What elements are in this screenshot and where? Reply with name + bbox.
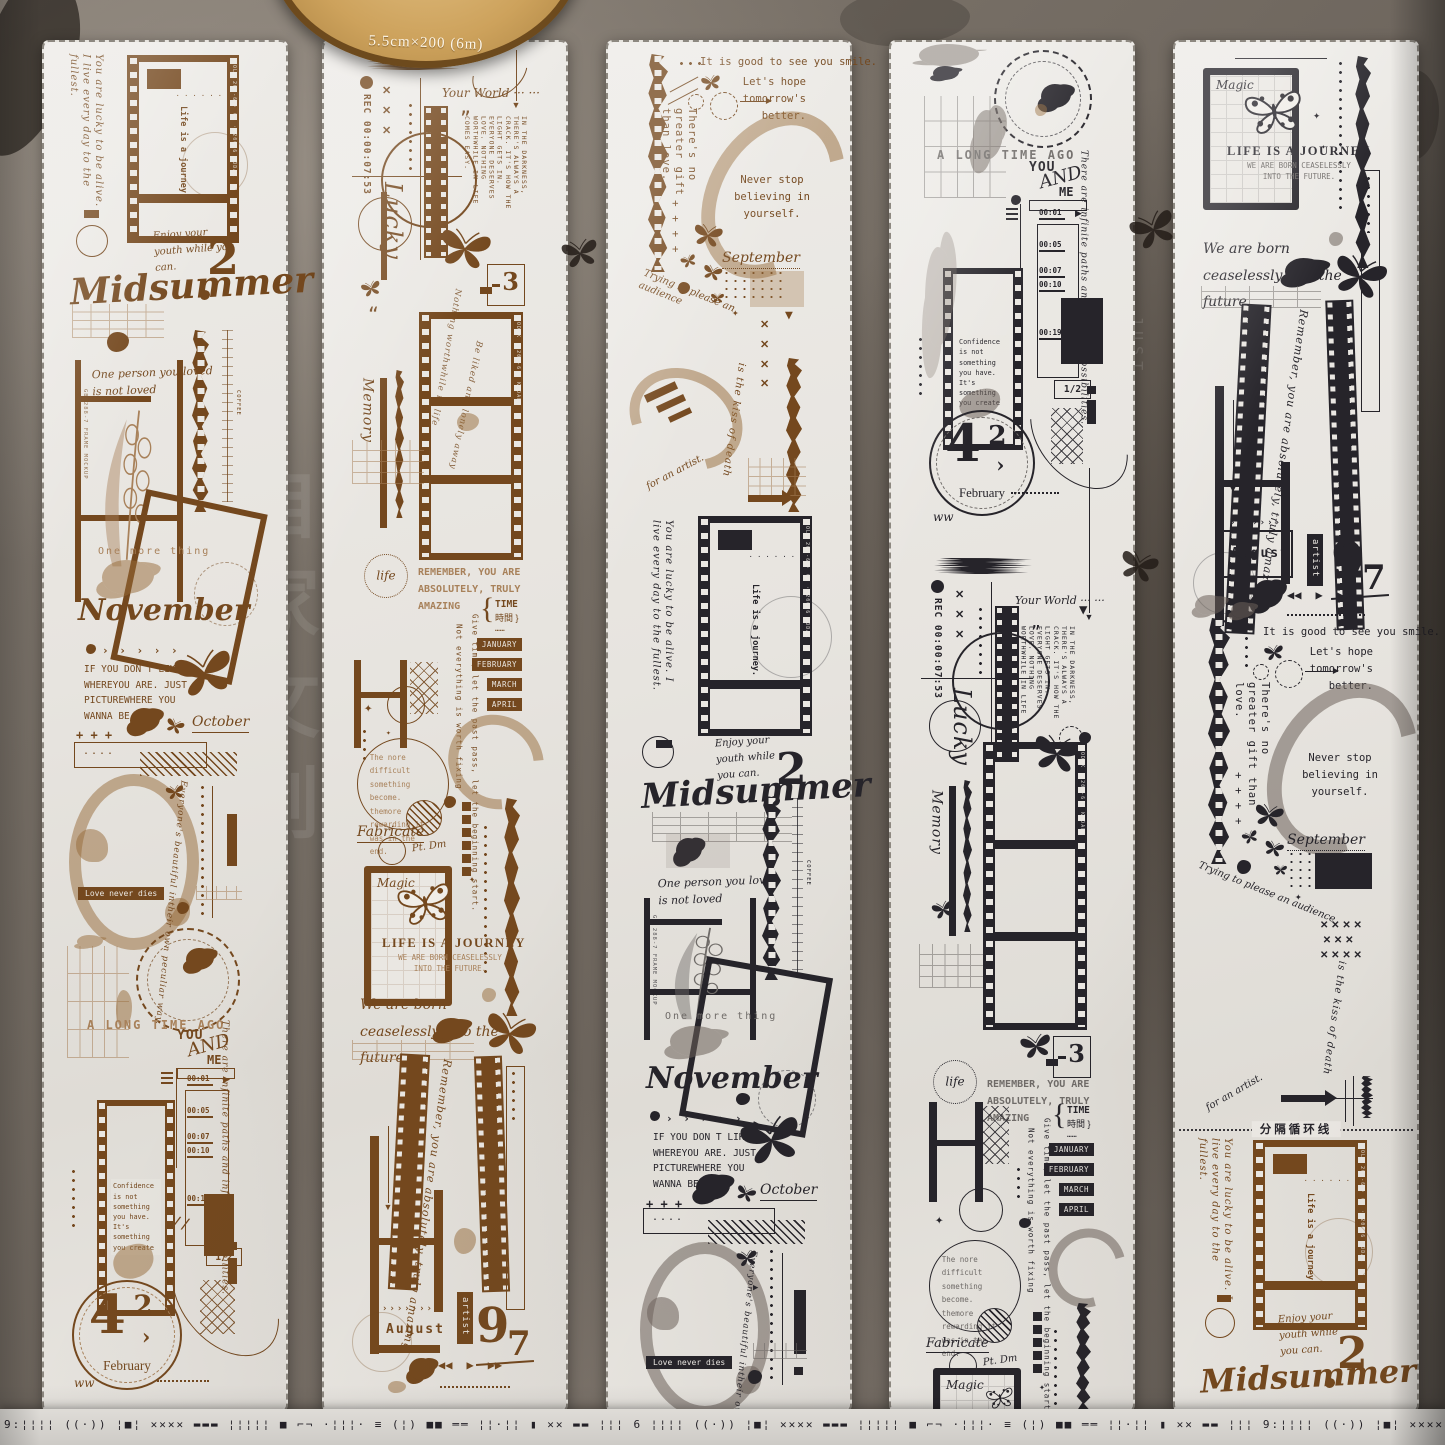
hatch (140, 752, 237, 776)
fill (1315, 853, 1372, 889)
line (1235, 58, 1327, 59)
hamb (1006, 208, 1018, 220)
grid (352, 440, 424, 484)
dotline (157, 1380, 209, 1382)
txt: ✦ (1039, 1382, 1045, 1395)
butterfly-icon (1017, 1029, 1055, 1061)
txt: ✦ (935, 1212, 943, 1230)
dotcol (1245, 628, 1248, 672)
tape-strip-4: A LONG TIME AGOYOUANDMEThere are infinit… (889, 40, 1135, 1412)
tape-strip-1: You are lucky to be alive. I live every … (42, 40, 288, 1412)
month-badge: FEBRUARY (472, 658, 522, 671)
txt: // (170, 1212, 192, 1234)
tornbar (504, 798, 520, 1016)
tornbar (1361, 1076, 1373, 1118)
fill (434, 1190, 443, 1312)
line (1345, 1080, 1346, 1122)
cross (200, 1280, 235, 1334)
grid (753, 1343, 807, 1359)
product-photo: 自家文创 JUST You are lucky to be alive. I l… (0, 0, 1445, 1445)
fill (929, 1140, 983, 1146)
month-badge: FEBRUARY (1044, 1163, 1094, 1176)
circdash (710, 92, 738, 120)
vtxt: + + + + (1231, 772, 1245, 838)
caption-one-more-thing: One more thing (98, 546, 210, 559)
tornbar (963, 780, 972, 932)
rec-dot-icon (931, 580, 944, 593)
6 (462, 802, 471, 876)
dotcol (1017, 1168, 1020, 1200)
txt: for an artist. (1204, 1058, 1290, 1115)
tape-strip-3: It is good to see you smile.Let's hope t… (606, 40, 852, 1412)
script-lucky: Lucky (947, 688, 977, 796)
line (921, 678, 1033, 679)
frame-caption: GB 288-7 FRAME MOCKUP (82, 389, 88, 480)
dotcol (72, 1170, 75, 1232)
circdash (1253, 664, 1269, 680)
txt: ✦ (469, 874, 475, 887)
ringfaint (1305, 1218, 1373, 1286)
grid (919, 944, 983, 988)
badge-love-never-dies: Love never dies (78, 887, 164, 900)
splat (933, 66, 959, 80)
txt: ✦ (364, 700, 372, 718)
circ (378, 837, 406, 865)
stamp-42-february: 42›February (929, 410, 1035, 516)
dotcol (919, 338, 922, 400)
script-fabricate: Fabricate (926, 1336, 989, 1353)
quote-no-greater-gift: There's no greater gift than love. (1243, 682, 1271, 808)
tornfilm (1208, 618, 1230, 864)
circdash (1275, 660, 1303, 688)
hamb (161, 1072, 173, 1084)
dotline (1287, 614, 1365, 616)
vtxt: + + + + (668, 200, 682, 264)
circular-quote (136, 928, 240, 1032)
film-edge-text: KODAK · 200-6 · KODAK (515, 318, 521, 402)
dotcol (1339, 62, 1342, 214)
txt: ✦ (1313, 108, 1320, 123)
txt: ▼ (1079, 602, 1087, 620)
bflyspot (392, 873, 457, 930)
tape-strip-5: MagicLIFE IS A JOURNEYWE ARE BORN CEASEL… (1173, 40, 1419, 1412)
butterfly-icon (690, 219, 726, 249)
play-icon: ▶ (223, 1074, 230, 1085)
butterfly-icon (358, 277, 383, 298)
loop-separator: 分隔循环线 (1179, 1122, 1413, 1138)
txt: ▼ (785, 308, 793, 324)
splat (1253, 580, 1283, 608)
splat (696, 1174, 730, 1200)
title-november: November (78, 592, 250, 630)
bottom-preview-glyphs: 9:¦¦¦¦ ((·)) ¦■¦ ✕✕✕✕ ▬▬▬ ¦¦¦¦¦ ■ ⌐¬ ·¦¦… (4, 1418, 1445, 1431)
dotline (440, 1386, 510, 1388)
butterfly-icon (1273, 862, 1288, 873)
player-icons: ◀◀▶▶▶ (1287, 588, 1351, 602)
month-badge: MARCH (487, 678, 522, 691)
badge-love-never-dies: Love never dies (646, 1356, 732, 1369)
splat (107, 332, 129, 352)
play-icon: ▶ (1075, 208, 1082, 219)
artist-badge: artist (457, 1292, 473, 1344)
splat (454, 1228, 476, 1254)
life-circle: life (364, 554, 408, 598)
splat (650, 1111, 660, 1121)
bottom-tape-preview: 9:¦¦¦¦ ((·)) ¦■¦ ✕✕✕✕ ▬▬▬ ¦¦¦¦¦ ■ ⌐¬ ·¦¦… (0, 1409, 1445, 1445)
fill (1061, 298, 1103, 364)
ringfaint (352, 1312, 412, 1372)
stamp-month: February (74, 1358, 180, 1374)
you-and-me: YOUANDME (177, 1028, 252, 1078)
arrline: ▶ (1305, 668, 1339, 676)
line (991, 582, 992, 768)
txt: ✦ (1321, 142, 1326, 152)
vtxt: is the kiss of death (1315, 960, 1347, 1102)
txt: + + + (76, 728, 112, 743)
hatch (708, 1220, 805, 1244)
line (420, 78, 421, 260)
month-september: September (1287, 832, 1365, 851)
line (352, 176, 462, 177)
player-icons: ◀◀▶▶▶ (438, 1358, 502, 1372)
arrowrow: › › › › › (666, 1112, 744, 1125)
txt: “ (368, 304, 379, 327)
month-badge: JANUARY (1049, 1143, 1094, 1156)
title-midsummer: Midsummer (1199, 1350, 1417, 1401)
xmkcol: ✕ ✕ ✕ (955, 586, 964, 645)
month-badge: JANUARY (477, 638, 522, 651)
title-midsummer: Midsummer (640, 764, 872, 818)
5 (1033, 1312, 1042, 1373)
fill (929, 1102, 937, 1202)
arrline: ▶ (740, 98, 772, 106)
dotline (1011, 492, 1059, 494)
circ (1205, 1308, 1235, 1338)
butterfly-icon (1251, 799, 1287, 829)
script-lucky-alive: You are lucky to be alive. I live every … (1199, 1138, 1233, 1302)
film-strip: KODAK · 200-6 · KODAK (983, 742, 1087, 1030)
dotcol (1054, 1330, 1057, 1408)
dotcol (1367, 177, 1370, 233)
script-your-world: Your World ··· ··· (1015, 594, 1105, 608)
tornh (934, 558, 1032, 574)
splat (919, 44, 979, 66)
ticks: COFFEE (222, 330, 236, 502)
cross (1051, 408, 1083, 464)
arcstain (429, 695, 563, 828)
fill (750, 271, 804, 307)
fill (84, 210, 99, 218)
background-butterfly-icon (558, 233, 603, 271)
bigarrow (748, 490, 794, 506)
splat (388, 1381, 406, 1393)
quote-never-stop: Never stop believing in yourself. (1301, 750, 1379, 800)
film-edge-text: KODAK · 200-6 · KODAK (1079, 748, 1085, 832)
fill (227, 814, 237, 866)
line (782, 1253, 783, 1385)
film (474, 1056, 510, 1293)
title-life-is-a-journey: LIFE IS A JOURNEY (1227, 144, 1371, 160)
circ (76, 225, 108, 257)
dotrow (680, 62, 702, 65)
stamp-42-february: 42›February (72, 1280, 182, 1390)
txt: ✦ (386, 728, 391, 738)
varrow: ▼ (382, 1126, 394, 1210)
circ (387, 686, 425, 724)
month-october: October (760, 1182, 817, 1201)
xmkcol: ✕ ✕ ✕ (382, 82, 391, 141)
separator-label: 分隔循环线 (1252, 1121, 1341, 1137)
bflyspot (1240, 80, 1309, 140)
tape-strip-2: ▼REC 00:00:07:53✕ ✕ ✕Your World ··· ···”… (322, 40, 568, 1412)
txt: WE ARE BORN CEASELESSLY INTO THE FUTURE. (394, 952, 506, 975)
box (1361, 170, 1380, 412)
tornfilm (192, 330, 209, 512)
ringfaint (750, 596, 832, 678)
xmkgrid: ✕ ✕ ✕ ✕ ✕ ✕ ✕ ✕ ✕ ✕ ✕ (1320, 918, 1362, 963)
life-circle: life (933, 1060, 977, 1104)
month-badge: APRIL (487, 698, 522, 711)
quote-never-stop: Never stop believing in yourself. (734, 172, 810, 222)
varrow: ▼ (1227, 400, 1239, 492)
number-3: 3 (487, 264, 525, 306)
txt: One more thing (665, 1011, 777, 1024)
title-life-is-a-journey: LIFE IS A JOURNEY (382, 936, 526, 952)
splat (130, 708, 160, 732)
month-badges: JANUARYFEBRUARYMARCHAPRIL (1014, 1143, 1094, 1216)
quote-darkness: IN THE DARKNESS, THERE'S ALWAYS A CRACK.… (1054, 626, 1076, 738)
month-october: October (192, 714, 249, 733)
fill (794, 1367, 803, 1375)
scr: ww (74, 1376, 95, 1391)
fast-forward-icon: ▶▶ (1337, 588, 1351, 602)
quote-smile: It is good to see you smile. (700, 56, 877, 69)
script-your-world: Your World ··· ··· (442, 86, 540, 101)
script-lucky-alive: You are lucky to be alive. I live every … (638, 520, 674, 706)
fill (354, 660, 361, 748)
script-lucky: Lucky (378, 182, 408, 290)
month-badge: APRIL (1059, 1203, 1094, 1216)
script-lucky-alive: You are lucky to be alive. I live every … (68, 54, 104, 216)
splat (1237, 860, 1251, 874)
fast-forward-icon: ▶▶ (488, 1358, 502, 1372)
arrowrow: ››››››› (1230, 518, 1282, 528)
quote-smile: It is good to see you smile. (1263, 626, 1440, 639)
circ (959, 1188, 1003, 1232)
cross (981, 1106, 1009, 1164)
artist-badge: artist (1307, 534, 1323, 586)
month-badge: MARCH (1059, 1183, 1094, 1196)
butterfly-icon (1261, 837, 1286, 858)
line (176, 1068, 177, 1168)
month-september: September (722, 250, 800, 269)
number-3: 3 (1053, 1036, 1091, 1078)
fill (370, 1238, 440, 1245)
ticks: COFFEE (792, 798, 806, 976)
splat (86, 644, 96, 654)
ringfaint (182, 132, 248, 198)
rec-dot-icon (360, 76, 373, 89)
circle-label: life (945, 1074, 964, 1088)
dotcol (770, 1250, 773, 1380)
tornbar (1076, 1303, 1091, 1409)
play-icon: ▶ (466, 1358, 473, 1372)
rewind-icon: ◀◀ (1287, 588, 1301, 602)
grid (196, 886, 242, 900)
fill (666, 834, 730, 868)
line (1353, 1076, 1354, 1126)
line (1321, 1098, 1373, 1099)
frame-caption: GB 288-7 FRAME MOCKUP (651, 915, 657, 1006)
fill (1217, 1295, 1231, 1302)
txt: ▶ (753, 1283, 758, 1294)
splat (444, 796, 456, 808)
fill (1215, 480, 1287, 487)
circle-label: life (376, 568, 395, 582)
circ (642, 736, 674, 768)
month-badges: JANUARYFEBRUARYMARCHAPRIL (442, 638, 522, 711)
scr: ww (933, 510, 954, 525)
rewind-icon: ◀◀ (438, 1358, 452, 1372)
splat (409, 1358, 435, 1380)
box (506, 1066, 525, 1310)
dotcol (512, 1072, 515, 1126)
play-icon: ▶ (1315, 588, 1322, 602)
you-and-me: YOUANDME (1029, 160, 1104, 210)
quote-darkness: IN THE DARKNESS, THERE'S ALWAYS A CRACK.… (506, 116, 528, 226)
